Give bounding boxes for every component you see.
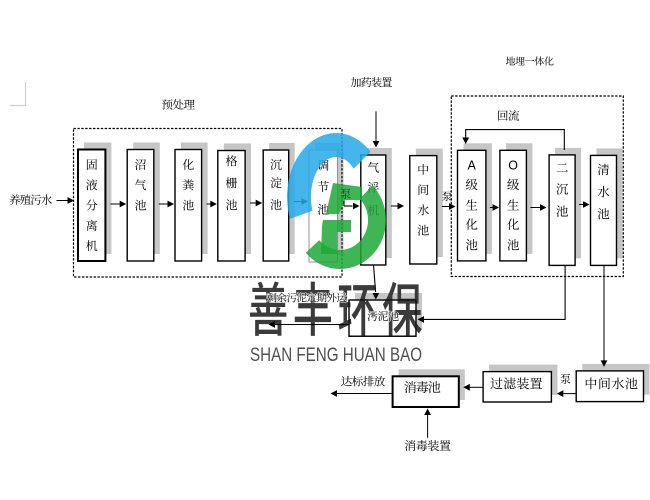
svg-text:O: O <box>508 158 518 172</box>
svg-text:SHAN FENG HUAN BAO: SHAN FENG HUAN BAO <box>250 345 422 366</box>
svg-text:A: A <box>468 158 477 172</box>
